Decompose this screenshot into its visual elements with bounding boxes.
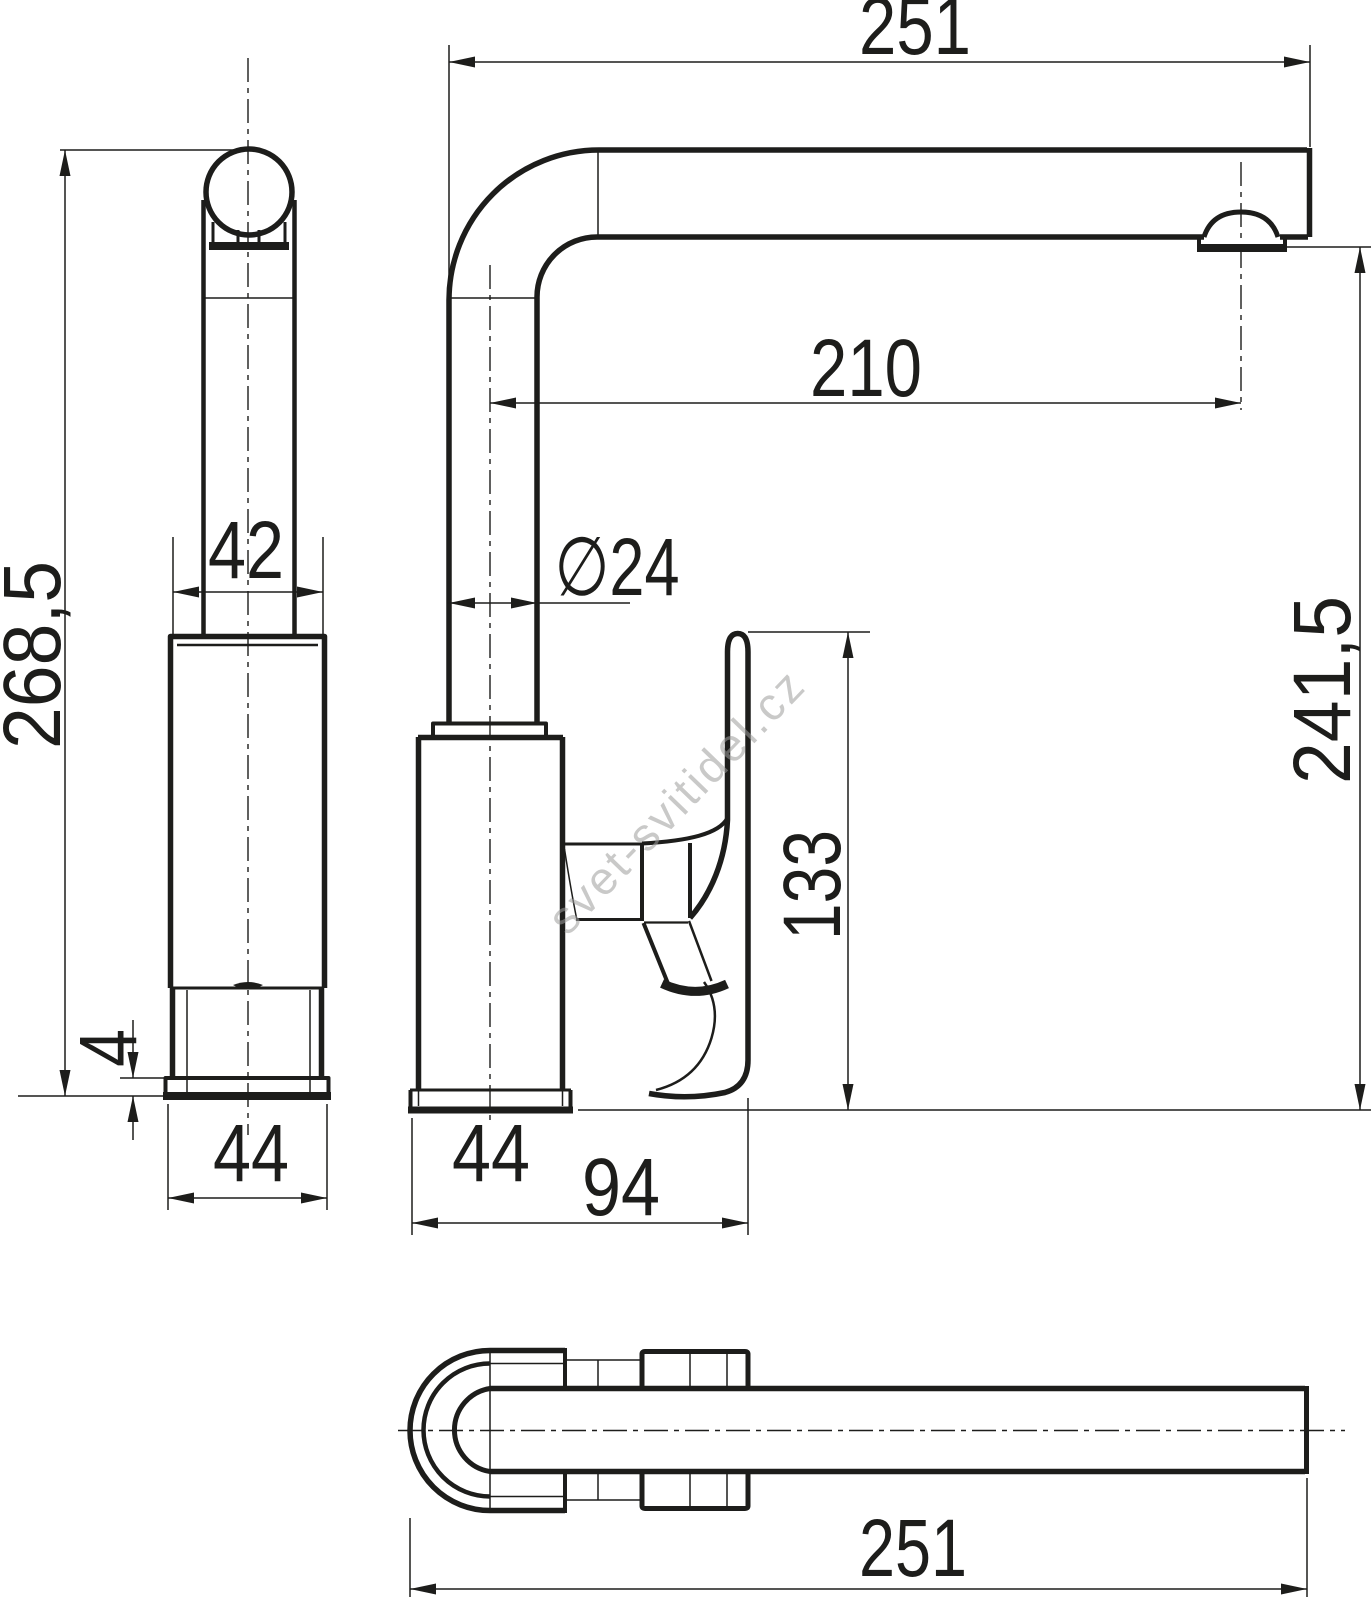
top-view xyxy=(398,1348,1345,1513)
spout-inner xyxy=(537,237,1204,723)
dim-label-total-height: 268,5 xyxy=(0,561,78,749)
base-side xyxy=(166,1078,329,1094)
dim-label-base-width-front: 44 xyxy=(452,1108,530,1199)
dim-label-base-width-side: 44 xyxy=(213,1108,289,1199)
dim-label-handle-height: 133 xyxy=(767,830,858,940)
drawing-page: 251 210 ∅24 268,5 241,5 133 42 4 44 44 9… xyxy=(0,0,1371,1600)
dim-label-spout-projection: 210 xyxy=(810,323,922,414)
dim-label-base-thickness: 4 xyxy=(63,1029,154,1067)
side-view xyxy=(163,58,331,1135)
dim-label-outlet-height: 241,5 xyxy=(1277,596,1368,784)
dim-label-body-depth: 94 xyxy=(582,1142,660,1233)
aerator-front xyxy=(1197,212,1287,248)
spout-end-circle xyxy=(206,149,292,235)
dim-label-spout-reach-top: 251 xyxy=(859,0,971,72)
handle-tip xyxy=(662,984,727,992)
handle-blade xyxy=(649,634,748,1097)
dim-label-spout-diameter: ∅24 xyxy=(555,522,680,613)
technical-drawing: 251 210 ∅24 268,5 241,5 133 42 4 44 44 9… xyxy=(0,0,1371,1600)
front-view xyxy=(408,148,1310,1125)
dim-label-spout-reach-bottom: 251 xyxy=(859,1503,967,1594)
dim-label-body-width: 42 xyxy=(208,505,284,596)
